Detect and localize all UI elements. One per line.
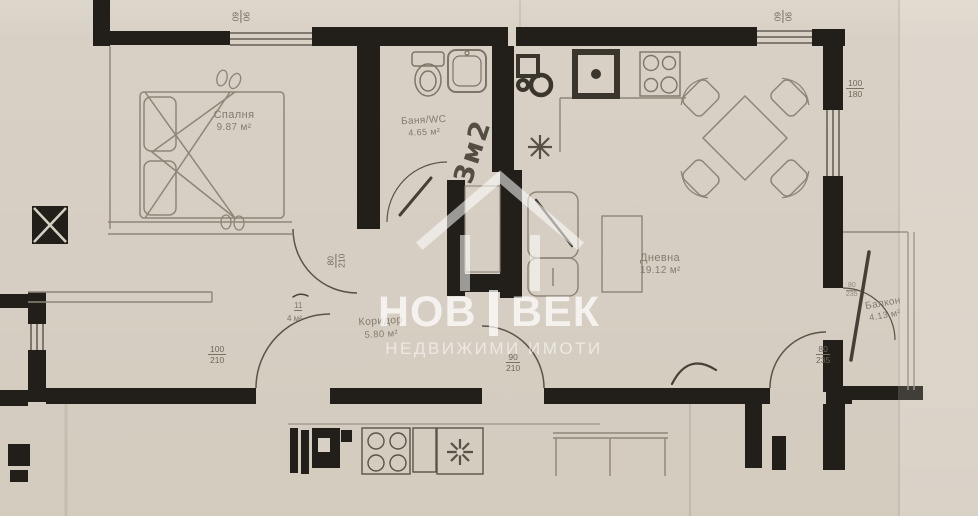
- dimension-window-top-left: 90 60: [230, 10, 251, 23]
- floor-plan-scan: Спалня 9.87 м² Баня/WC 4.65 м² Дневна 19…: [0, 0, 978, 516]
- bedroom-area: 9.87 м²: [196, 122, 272, 135]
- bedroom-label: Спалня 9.87 м²: [196, 108, 272, 135]
- coffee-table: [602, 216, 642, 292]
- dimension-terrace-door: 80 235: [814, 344, 832, 365]
- dimension-corridor-door: 90 210: [504, 352, 522, 373]
- walls: [0, 0, 923, 482]
- living-label: Дневна 19.12 м²: [640, 251, 730, 278]
- entrance-door-arc: [256, 314, 330, 388]
- kitchen-sink-icon: [575, 52, 617, 96]
- toilet-icon: [412, 52, 444, 96]
- dimension-window-right: 100 180: [846, 78, 864, 99]
- dimension-entrance-door: 100 210: [208, 344, 226, 365]
- closet-width-label: 11: [294, 301, 302, 311]
- closet-area-label: 4 м²: [287, 314, 302, 323]
- dimension-bedroom-door: 80 210: [325, 252, 346, 270]
- dimension-balcony-door: 80 235: [844, 282, 860, 300]
- bedroom-name: Спалня: [196, 108, 272, 122]
- bathroom-label: Баня/WC 4.65 м²: [387, 112, 460, 140]
- living-area: 19.12 м²: [640, 265, 730, 278]
- dimension-window-top-right: 90 60: [772, 10, 793, 23]
- living-name: Дневна: [640, 251, 730, 265]
- dining-set: [676, 73, 814, 203]
- boiler-icon: [518, 56, 551, 95]
- star-symbol-kitchen: [528, 135, 552, 159]
- stove-icon: [640, 52, 680, 96]
- lower-unit-fixture-notch: [318, 438, 330, 452]
- bath-sink-icon: [448, 50, 486, 92]
- shaft-symbol: [32, 206, 68, 244]
- bathroom-door-arc: [387, 162, 447, 222]
- corridor-label: Коридор 5.80 м²: [335, 313, 426, 344]
- star-symbol-lower: [447, 439, 473, 465]
- floor-plan-drawing: [0, 0, 978, 516]
